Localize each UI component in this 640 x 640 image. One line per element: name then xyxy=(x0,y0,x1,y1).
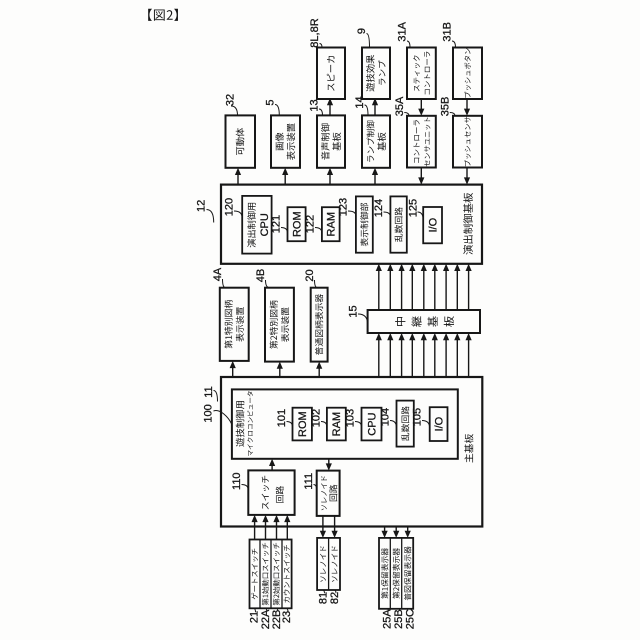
svg-text:125: 125 xyxy=(407,199,419,217)
svg-text:81: 81 xyxy=(318,592,330,604)
svg-text:31B: 31B xyxy=(442,22,454,42)
svg-text:124: 124 xyxy=(373,199,385,217)
svg-text:110: 110 xyxy=(231,472,243,490)
svg-text:82: 82 xyxy=(329,592,341,604)
svg-text:121: 121 xyxy=(271,215,283,233)
svg-text:100: 100 xyxy=(203,404,215,422)
svg-text:15: 15 xyxy=(348,305,360,317)
svg-text:11: 11 xyxy=(203,386,215,397)
svg-text:ROM: ROM xyxy=(292,211,304,237)
svg-text:25B: 25B xyxy=(393,609,405,629)
svg-text:I/O: I/O xyxy=(427,217,439,232)
svg-text:25C: 25C xyxy=(405,609,417,629)
svg-text:5: 5 xyxy=(265,99,277,105)
svg-text:25A: 25A xyxy=(382,609,394,629)
svg-text:31A: 31A xyxy=(397,21,409,41)
svg-text:8L,8R: 8L,8R xyxy=(309,18,321,47)
svg-text:102: 102 xyxy=(311,409,323,427)
svg-text:122: 122 xyxy=(305,215,317,233)
svg-text:CPU: CPU xyxy=(366,412,378,435)
svg-text:RAM: RAM xyxy=(326,212,338,236)
svg-text:13: 13 xyxy=(309,99,321,111)
svg-text:9: 9 xyxy=(356,28,368,34)
svg-text:105: 105 xyxy=(412,408,424,426)
svg-text:12: 12 xyxy=(196,200,208,212)
svg-text:103: 103 xyxy=(345,409,357,427)
svg-text:20: 20 xyxy=(304,269,316,281)
svg-text:120: 120 xyxy=(224,198,236,216)
svg-text:21: 21 xyxy=(249,611,261,623)
svg-text:111: 111 xyxy=(303,473,315,490)
svg-text:123: 123 xyxy=(338,198,350,216)
svg-text:I/O: I/O xyxy=(433,416,445,431)
svg-text:14: 14 xyxy=(354,96,366,108)
svg-text:104: 104 xyxy=(380,408,392,426)
svg-text:23: 23 xyxy=(281,611,293,623)
svg-text:RAM: RAM xyxy=(331,412,343,436)
svg-text:ROM: ROM xyxy=(297,411,309,437)
svg-text:101: 101 xyxy=(276,409,288,427)
svg-text:35B: 35B xyxy=(439,97,451,117)
svg-text:CPU: CPU xyxy=(259,213,271,236)
svg-text:32: 32 xyxy=(225,94,237,106)
svg-text:35A: 35A xyxy=(394,96,406,116)
